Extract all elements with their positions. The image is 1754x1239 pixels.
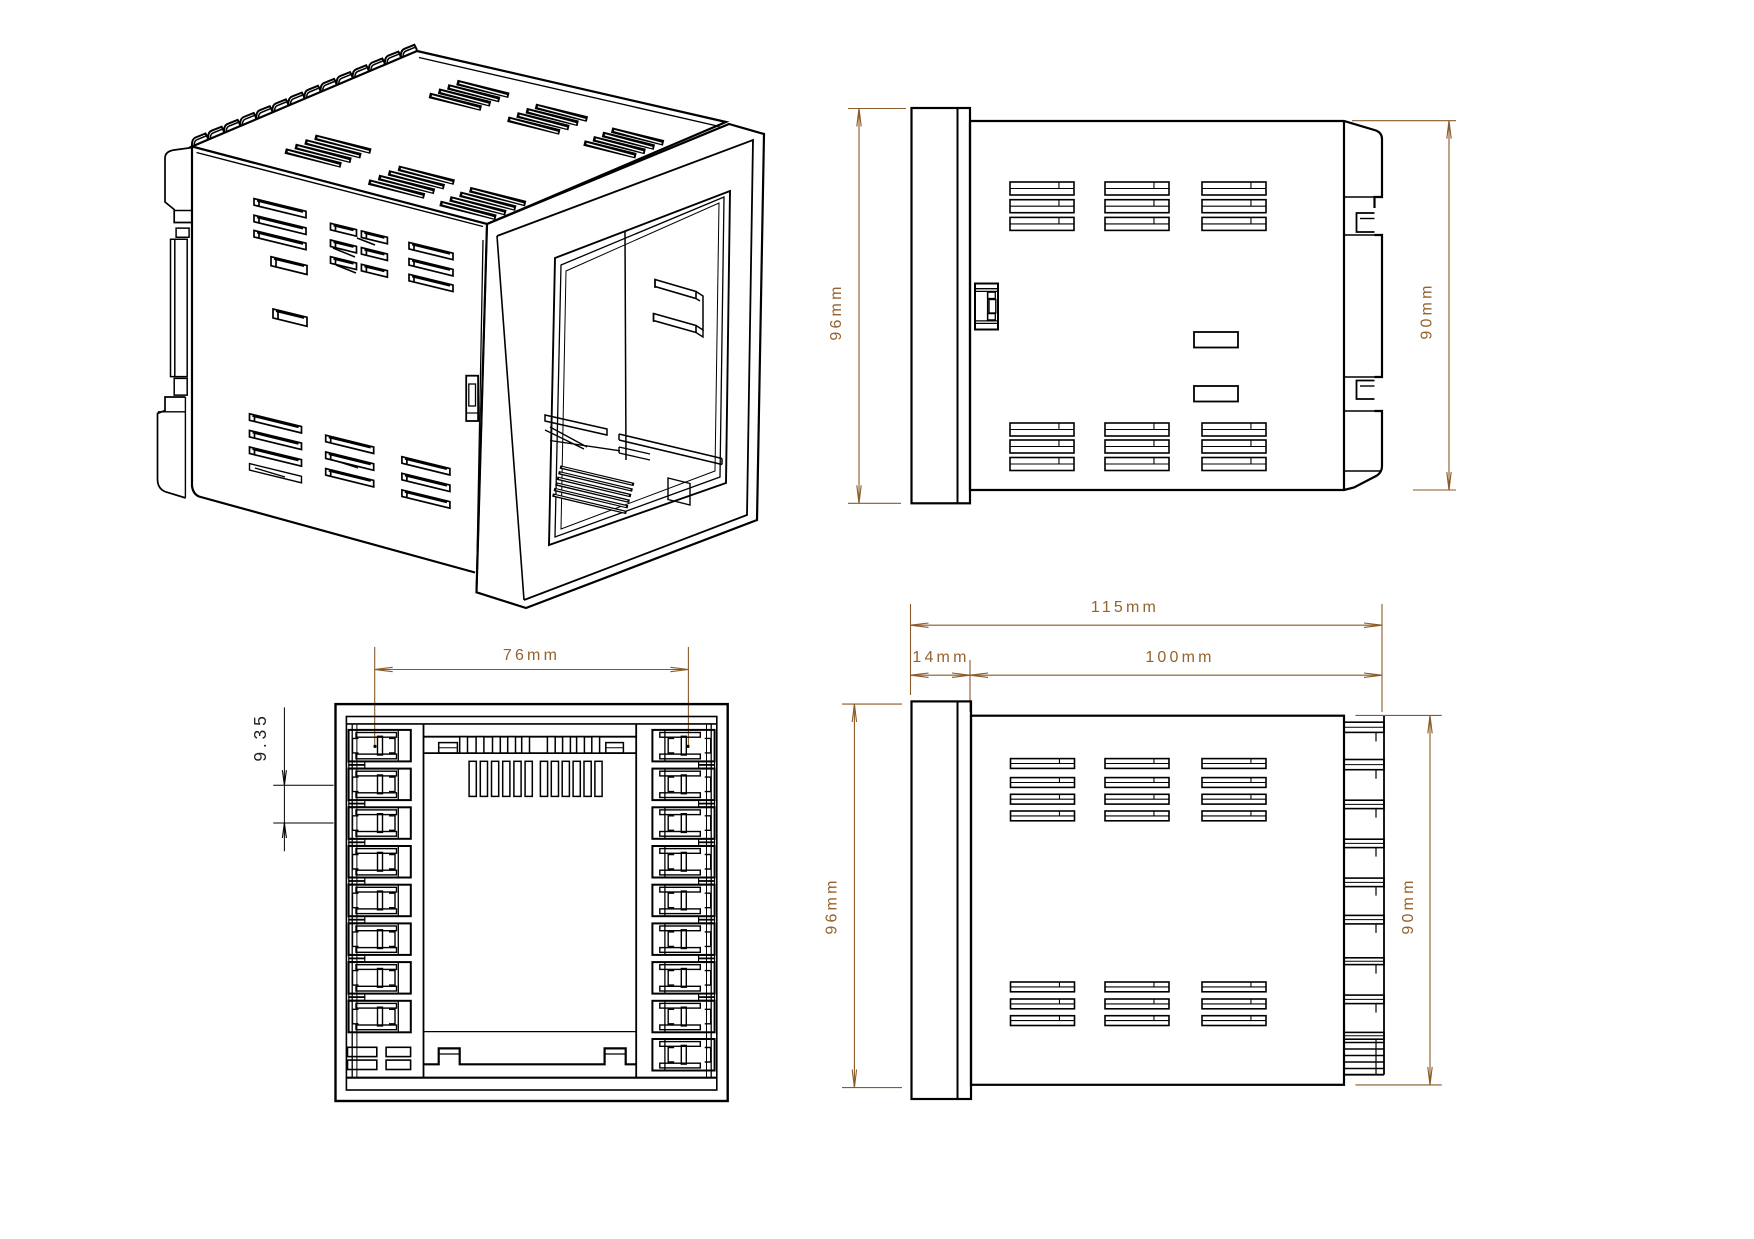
svg-text:14mm: 14mm — [912, 649, 969, 666]
svg-text:100mm: 100mm — [1145, 649, 1214, 666]
svg-text:9.35: 9.35 — [250, 712, 270, 761]
svg-text:90mm: 90mm — [1419, 282, 1436, 339]
svg-text:96mm: 96mm — [828, 283, 845, 340]
svg-text:90mm: 90mm — [1400, 877, 1417, 934]
svg-text:96mm: 96mm — [824, 877, 841, 934]
svg-text:115mm: 115mm — [1091, 599, 1159, 616]
svg-text:76mm: 76mm — [503, 647, 560, 664]
